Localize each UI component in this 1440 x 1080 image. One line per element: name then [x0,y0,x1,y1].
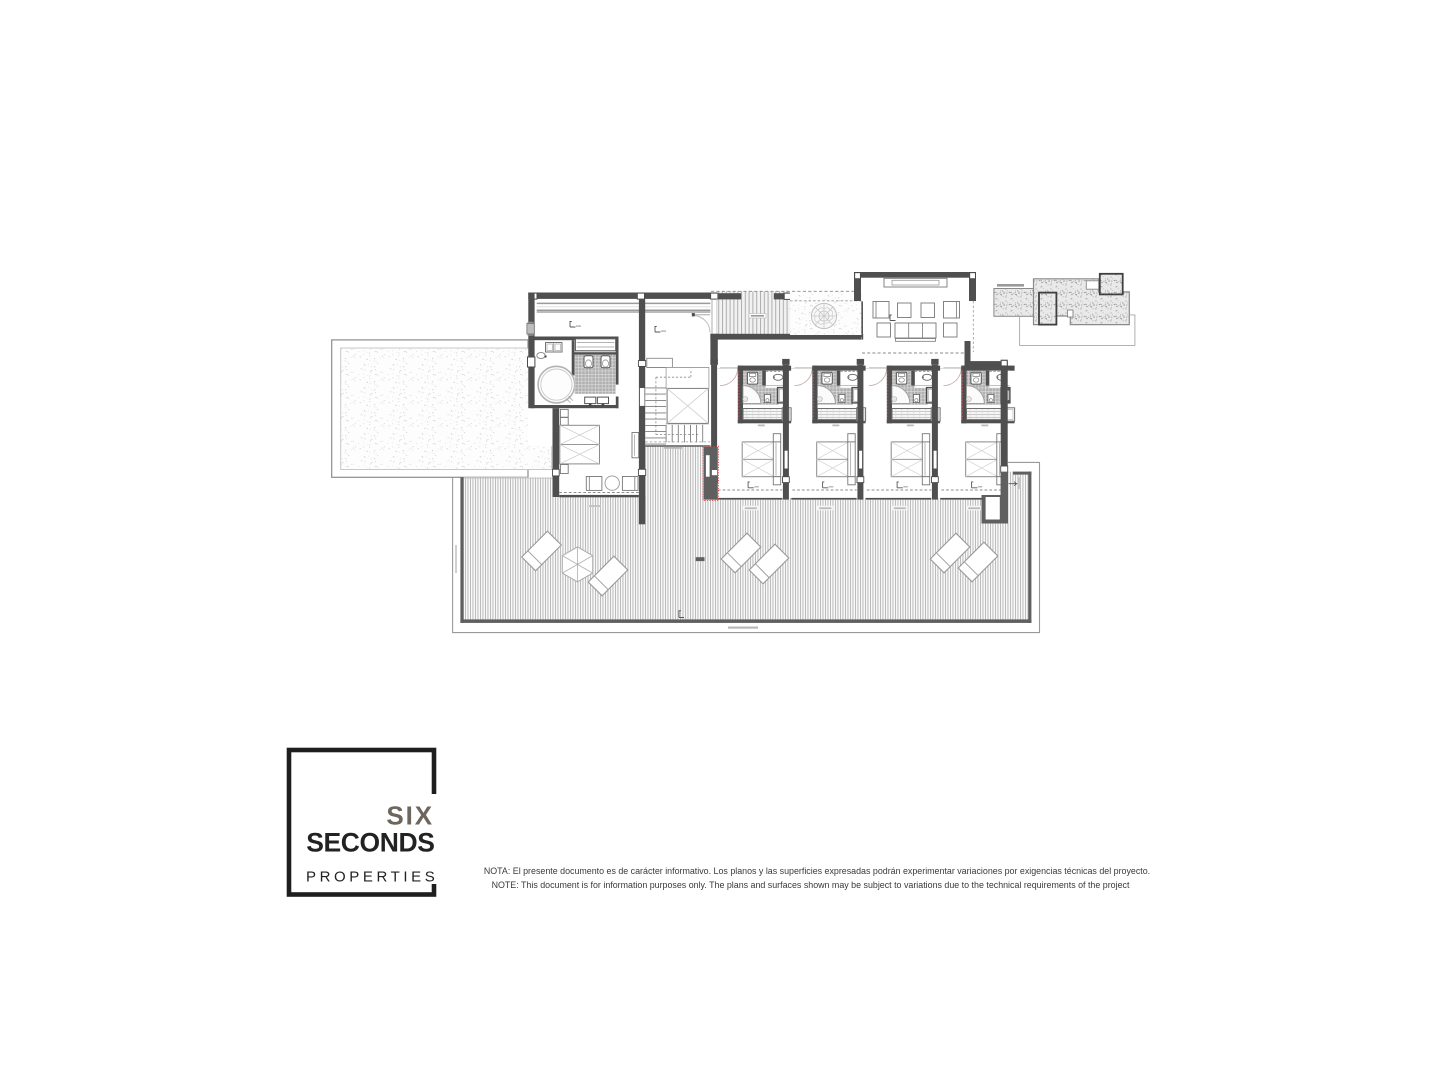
svg-text:SECONDS: SECONDS [306,828,434,858]
svg-text:SIX: SIX [386,801,434,831]
svg-text:NOTA: El presente documento es: NOTA: El presente documento es de caráct… [484,866,1150,876]
svg-text:NOTE: This document is for inf: NOTE: This document is for information p… [492,880,1130,890]
svg-text:PROPERTIES: PROPERTIES [306,869,438,886]
